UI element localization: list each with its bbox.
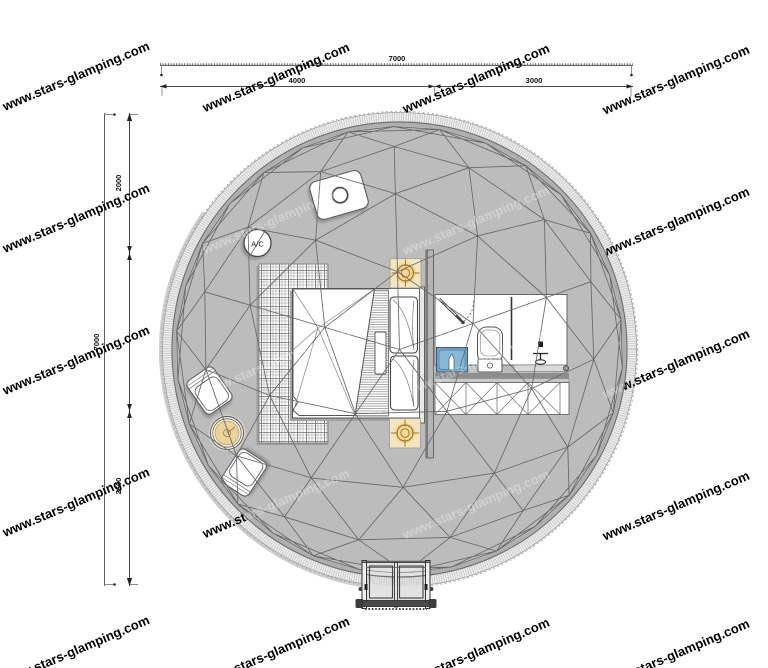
svg-text:www.stars-glamping.com: www.stars-glamping.com (0, 464, 152, 540)
svg-text:www.stars-glamping.com: www.stars-glamping.com (199, 39, 351, 115)
svg-text:www.stars-glamping.com: www.stars-glamping.com (599, 616, 751, 668)
svg-text:www.stars-glamping.com: www.stars-glamping.com (0, 322, 152, 398)
svg-text:www.stars-glamping.com: www.stars-glamping.com (199, 613, 351, 668)
svg-text:www.stars-glamping.com: www.stars-glamping.com (0, 38, 152, 114)
svg-text:A/C: A/C (251, 240, 264, 249)
svg-text:7000: 7000 (389, 54, 406, 63)
svg-text:www.stars-glamping.com: www.stars-glamping.com (0, 180, 152, 256)
svg-text:2000: 2000 (114, 175, 123, 192)
svg-text:www.stars-glamping.com: www.stars-glamping.com (599, 42, 751, 118)
svg-text:3000: 3000 (526, 76, 543, 85)
svg-text:www.stars-glamping.com: www.stars-glamping.com (599, 468, 751, 544)
svg-text:www.stars-glamping.com: www.stars-glamping.com (599, 184, 751, 260)
svg-text:www.stars-glamping.com: www.stars-glamping.com (0, 612, 152, 668)
svg-text:www.stars-glamping.com: www.stars-glamping.com (399, 615, 551, 668)
